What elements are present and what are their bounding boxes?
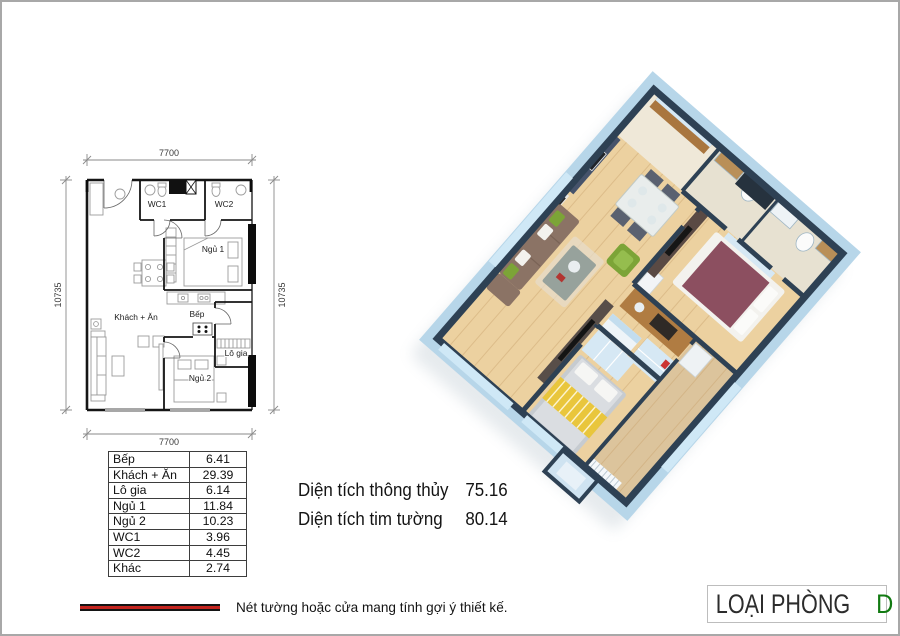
table-row: WC24.45 [109, 545, 247, 561]
table-row: Ngủ 111.84 [109, 498, 247, 514]
room-name: WC2 [109, 545, 190, 561]
label-ngu1: Ngủ 1 [202, 244, 225, 254]
room-area: 3.96 [190, 529, 247, 545]
apartment-floorplan-sheet: 7700 7700 10735 10735 [0, 0, 900, 636]
area-value: 75.16 [465, 480, 507, 501]
table-row: Ngủ 210.23 [109, 514, 247, 530]
room-area: 2.74 [190, 561, 247, 577]
room-name: Ngủ 1 [109, 498, 190, 514]
area-label: Diện tích tim tường [298, 509, 465, 530]
legend-note: Nét tường hoặc cửa mang tính gợi ý thiết… [236, 599, 508, 615]
label-khach-an: Khách + Ăn [114, 312, 158, 322]
area-summary-row: Diện tích thông thủy 75.16 [298, 480, 508, 501]
room-name: WC1 [109, 529, 190, 545]
dim-top-label: 7700 [159, 148, 179, 158]
table-row: Lô gia6.14 [109, 483, 247, 499]
room-name: Lô gia [109, 483, 190, 499]
table-row: Bếp6.41 [109, 452, 247, 468]
legend: Nét tường hoặc cửa mang tính gợi ý thiết… [80, 599, 516, 615]
room-area: 10.23 [190, 514, 247, 530]
label-lo-gia: Lô gia [225, 348, 248, 358]
room-name: Khách + Ăn [109, 467, 190, 483]
area-label: Diện tích thông thủy [298, 480, 465, 501]
dim-left-label: 10735 [53, 282, 63, 307]
room-type-box: LOẠI PHÒNG D [707, 585, 887, 623]
room-name: Ngủ 2 [109, 514, 190, 530]
area-summary: Diện tích thông thủy 75.16 Diện tích tim… [298, 480, 521, 538]
room-area: 6.41 [190, 452, 247, 468]
room-name: Bếp [109, 452, 190, 468]
label-wc2: WC2 [215, 199, 234, 209]
room-type-label: LOẠI PHÒNG [716, 589, 850, 620]
dim-bottom-label: 7700 [159, 437, 179, 447]
floor-plan-2d: 7700 7700 10735 10735 [50, 142, 294, 452]
label-wc1: WC1 [148, 199, 167, 209]
label-bep: Bếp [190, 309, 205, 319]
room-area: 4.45 [190, 545, 247, 561]
room-area: 11.84 [190, 498, 247, 514]
room-name: Khác [109, 561, 190, 577]
plan-room-labels: WC1 WC2 Ngủ 1 Khách + Ăn Bếp Lô gia Ngủ … [114, 199, 248, 383]
room-type-value: D [876, 589, 893, 620]
table-row: Khách + Ăn29.39 [109, 467, 247, 483]
room-area: 29.39 [190, 467, 247, 483]
plan-furniture [90, 183, 250, 402]
room-area-table: Bếp6.41 Khách + Ăn29.39 Lô gia6.14 Ngủ 1… [108, 451, 247, 577]
dim-right-label: 10735 [277, 282, 287, 307]
area-summary-row: Diện tích tim tường 80.14 [298, 509, 508, 530]
table-row: Khác2.74 [109, 561, 247, 577]
legend-line-swatch [80, 604, 220, 611]
table-row: WC13.96 [109, 529, 247, 545]
room-area: 6.14 [190, 483, 247, 499]
area-value: 80.14 [465, 509, 507, 530]
label-ngu2: Ngủ 2 [189, 373, 212, 383]
